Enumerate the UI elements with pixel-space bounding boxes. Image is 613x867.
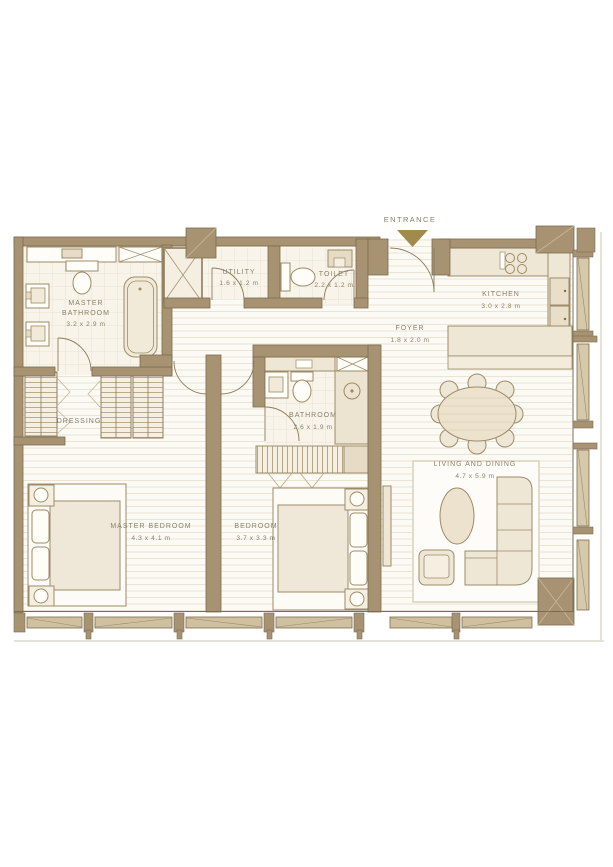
sink-vanity-2 [26,322,49,346]
label-foyer-dims: 1.8 x 2.0 m [390,337,429,344]
fridge-units [550,278,569,333]
wall-bedroom-right [368,345,381,612]
entrance-jamb-left [368,239,388,275]
bathtub [124,277,157,357]
label-bedroom-dims: 3.7 x 3.3 m [236,535,275,542]
duvet [278,505,348,592]
floor-plan-page: ENTRANCE MASTER BATHROOM 3.2 x 2.9 m UTI… [0,0,613,867]
label-master-bathroom-1: MASTER [68,300,103,307]
label-utility-dims: 1.6 x 1.2 m [219,280,258,287]
wall-hall-c [354,298,368,308]
label-master-bathroom-2: BATHROOM [62,310,110,317]
window-band-bottom [14,612,604,642]
armchair [419,550,454,585]
column-bottom-right [538,578,574,625]
label-master-bedroom-dims: 4.3 x 4.1 m [131,535,170,542]
pillow [350,551,367,585]
label-living-dining: LIVING AND DINING [434,461,517,468]
nightstand [345,489,370,510]
wall-utility-toilet [268,246,280,304]
label-master-bedroom: MASTER BEDROOM [110,523,191,530]
nightstand [29,485,54,506]
label-utility: UTILITY [222,269,255,276]
wall-hall-b [244,298,322,308]
label-master-bathroom-dims: 3.2 x 2.9 m [66,321,105,328]
room-master-bedroom [28,484,126,606]
nightstand [29,586,54,606]
wall-mb-south-b [92,367,172,376]
wall-toilet-right [356,239,368,304]
room-bedroom [273,488,371,610]
hob-control [500,252,505,269]
wall-bathroom-top [253,345,380,357]
wall-central [206,355,221,612]
label-living-dining-dims: 4.7 x 5.9 m [455,473,494,480]
label-toilet-dims: 2.2 x 1.2 m [314,282,353,289]
shaft-box-icon [337,357,368,371]
shaft-box-icon [119,247,162,262]
toilet-sink-cabinet [328,250,352,267]
label-dressing: DRESSING [57,418,102,425]
nightstand [345,589,370,609]
wall-foyer-stub [140,355,172,367]
wardrobe [101,374,131,438]
label-bathroom: BATHROOM [289,412,337,419]
label-toilet: TOILET [319,271,349,278]
label-kitchen-dims: 3.0 x 2.8 m [481,303,520,310]
shower [335,371,368,444]
counter-item [296,360,312,368]
kitchen-counter-top [448,248,548,276]
label-kitchen: KITCHEN [482,291,520,298]
bathroom-wc [291,372,313,402]
wall-dressing-south [14,437,65,445]
wardrobe [25,372,57,436]
entrance-jamb-right [432,239,450,275]
tv-console [383,486,391,566]
pillow [32,547,49,580]
cistern-box [62,249,82,258]
wall-left [14,237,23,613]
duvet [50,501,120,590]
kitchen-island-ledge [448,356,572,369]
wardrobe [133,374,163,438]
bathroom-sink [264,372,288,398]
window-band-right [573,228,601,640]
pillow [350,513,367,547]
column-pier [186,228,216,258]
label-bathroom-dims: 2.6 x 1.9 m [293,424,332,431]
label-bedroom: BEDROOM [234,523,277,530]
floor-plan-svg: ENTRANCE MASTER BATHROOM 3.2 x 2.9 m UTI… [0,0,613,867]
pillow [32,510,49,543]
column-top-right [536,226,574,253]
kitchen-island [448,326,572,356]
sink-vanity-1 [26,284,49,308]
wall-top-right [440,239,538,248]
wall-bathroom-left [253,357,265,407]
wall-hall-a [164,298,210,308]
wall-mb-south-a [14,367,55,376]
label-foyer: FOYER [395,325,424,332]
coffee-table [440,488,474,544]
entrance-label: ENTRANCE [384,215,436,224]
